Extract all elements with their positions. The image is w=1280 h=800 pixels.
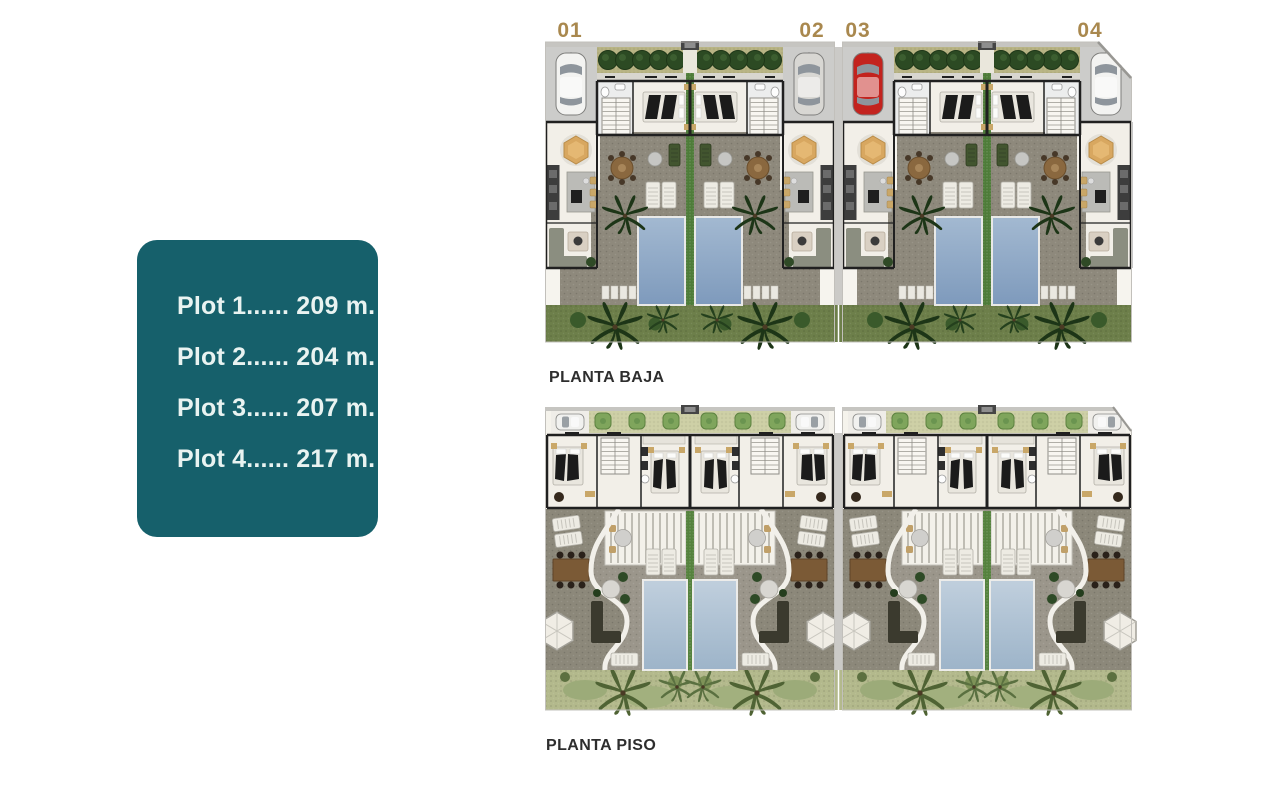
legend-item: Plot 3...... 207 m. bbox=[177, 383, 378, 434]
legend-item: Plot 2...... 204 m. bbox=[177, 332, 378, 383]
planta-piso-plan bbox=[545, 405, 1136, 716]
car-icon bbox=[556, 53, 586, 115]
floor-plan-page: Plot 1...... 209 m. Plot 2...... 204 m. … bbox=[0, 0, 1280, 800]
site-plan-graphic bbox=[545, 40, 1139, 740]
plot-size-legend: Plot 1...... 209 m. Plot 2...... 204 m. … bbox=[137, 240, 378, 537]
legend-item: Plot 4...... 217 m. bbox=[177, 434, 378, 485]
planta-baja-plan bbox=[545, 40, 1133, 350]
legend-item: Plot 1...... 209 m. bbox=[177, 281, 378, 332]
car-icon bbox=[794, 53, 824, 115]
car-red-icon bbox=[853, 53, 883, 115]
